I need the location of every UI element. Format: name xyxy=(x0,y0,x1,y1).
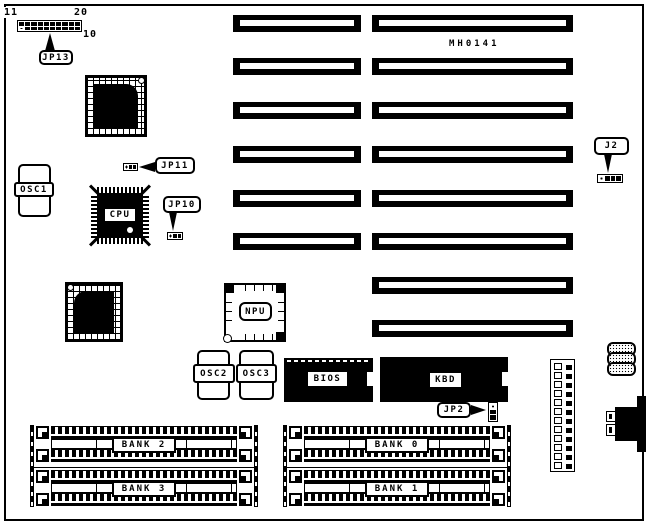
socket-teeth xyxy=(304,426,490,434)
jp13-pin xyxy=(75,22,80,26)
jp13-pin xyxy=(62,27,67,31)
bank-rail xyxy=(30,425,34,507)
expansion-slot xyxy=(372,146,573,163)
socket-clip xyxy=(239,426,252,439)
expansion-slot xyxy=(233,102,361,119)
qfp-chip-top-left xyxy=(85,75,147,137)
socket-corner xyxy=(276,332,285,341)
bank-label: BANK 2 xyxy=(112,437,176,453)
bank-rail xyxy=(254,425,258,507)
jumper-pin xyxy=(490,415,496,420)
jp13-pin xyxy=(75,27,80,31)
bank-rail xyxy=(283,425,287,507)
socket-bar xyxy=(304,503,490,506)
board-part-number: MH0141 xyxy=(449,39,500,49)
inductor-component xyxy=(607,342,636,376)
cpu-pins-right xyxy=(143,194,149,238)
expansion-slot xyxy=(372,320,573,337)
jp11-jumper xyxy=(123,163,138,171)
power-pin xyxy=(566,365,572,370)
pin1-notch-icon xyxy=(138,77,145,84)
socket-bar xyxy=(51,459,237,462)
power-pin xyxy=(566,455,572,460)
bank-label: BANK 1 xyxy=(365,481,429,497)
slot-opening xyxy=(379,20,566,26)
socket-clip xyxy=(289,470,302,483)
bios-notch xyxy=(367,372,373,386)
slot-opening xyxy=(379,63,566,69)
slot-opening xyxy=(240,195,354,201)
clip-hook xyxy=(42,455,47,460)
jp10-jumper xyxy=(167,232,183,240)
qfp-chip-body xyxy=(74,291,114,333)
slot-opening xyxy=(240,63,354,69)
jp13-pin1 xyxy=(19,27,24,31)
osc2-label: OSC2 xyxy=(193,364,235,383)
socket-clip xyxy=(36,493,49,506)
jp13-pin xyxy=(56,22,61,26)
power-hole xyxy=(554,444,562,451)
socket-pin1-notch-icon xyxy=(223,334,232,343)
expansion-slot xyxy=(372,102,573,119)
jp13-pin xyxy=(25,22,30,26)
expansion-slot xyxy=(233,190,361,207)
socket-clip xyxy=(492,470,505,483)
power-pin xyxy=(566,410,572,415)
jp11-callout-label: JP11 xyxy=(155,157,195,174)
socket-ticks xyxy=(226,296,232,329)
clip-hook xyxy=(241,455,246,460)
jumper-pin xyxy=(605,176,610,181)
clip-hook xyxy=(494,476,499,481)
slot-opening xyxy=(379,325,566,331)
socket-clip xyxy=(36,470,49,483)
bank-separator xyxy=(34,467,254,468)
clip-hook xyxy=(42,499,47,504)
kbd-label: KBD xyxy=(429,372,462,388)
jp10-callout-label: JP10 xyxy=(163,196,201,213)
expansion-slot xyxy=(372,15,573,32)
j2-callout-pointer xyxy=(604,154,612,173)
expansion-slot xyxy=(372,190,573,207)
jp13-pin xyxy=(38,27,43,31)
bios-socket-dashes xyxy=(287,360,370,362)
power-pin xyxy=(566,464,572,469)
jp13-pin xyxy=(62,22,67,26)
power-hole xyxy=(554,399,562,406)
power-hole xyxy=(554,408,562,415)
jumper-pin xyxy=(129,165,132,169)
socket-corner xyxy=(276,284,285,293)
socket-clip xyxy=(289,493,302,506)
jp13-pin xyxy=(31,27,36,31)
clip-hook xyxy=(494,455,499,460)
jumper-pin xyxy=(490,404,496,409)
socket-clip xyxy=(492,426,505,439)
slot-opening xyxy=(379,107,566,113)
cpu-pins-bottom xyxy=(97,238,143,244)
clip-hook xyxy=(42,476,47,481)
cpu-label: CPU xyxy=(104,208,136,222)
slot-opening xyxy=(240,107,354,113)
jp13-callout-pointer xyxy=(45,33,55,51)
power-hole xyxy=(554,426,562,433)
jp13-pin xyxy=(44,22,49,26)
bank-label: BANK 3 xyxy=(112,481,176,497)
jp2-callout-pointer xyxy=(471,405,486,415)
power-hole xyxy=(554,453,562,460)
j2-callout-label: J2 xyxy=(594,137,629,155)
socket-corner xyxy=(225,284,234,293)
expansion-slot xyxy=(372,233,573,250)
jp13-pin xyxy=(69,27,74,31)
socket-clip xyxy=(492,449,505,462)
jumper-pin xyxy=(599,176,604,181)
power-hole xyxy=(554,363,562,370)
jumper-pin xyxy=(133,165,136,169)
keyboard-port-step xyxy=(637,440,646,452)
power-hole xyxy=(554,372,562,379)
power-pin xyxy=(566,392,572,397)
power-hole xyxy=(554,417,562,424)
power-pin xyxy=(566,383,572,388)
jp13-pin xyxy=(25,27,30,31)
power-hole xyxy=(554,390,562,397)
motherboard-diagram: 11 20 10 JP13 OSC1 JP11 CPU JP10 xyxy=(0,0,650,528)
socket-clip xyxy=(492,493,505,506)
clip-hook xyxy=(494,432,499,437)
socket-clip xyxy=(239,449,252,462)
expansion-slot xyxy=(233,233,361,250)
clip-hook xyxy=(295,455,300,460)
socket-ticks xyxy=(278,296,284,329)
power-pin xyxy=(566,401,572,406)
slot-opening xyxy=(240,151,354,157)
expansion-slot xyxy=(372,58,573,75)
expansion-slot xyxy=(233,15,361,32)
socket-teeth xyxy=(304,470,490,478)
jp11-callout-pointer xyxy=(139,162,155,172)
clip-hook xyxy=(295,432,300,437)
clip-hook xyxy=(241,499,246,504)
socket-teeth xyxy=(51,470,237,478)
slot-opening xyxy=(240,238,354,244)
jp13-pin-header xyxy=(17,20,82,32)
expansion-slot xyxy=(372,277,573,294)
socket-clip xyxy=(289,426,302,439)
slot-opening xyxy=(379,282,566,288)
jp13-pin xyxy=(56,27,61,31)
jumper-pin xyxy=(490,410,496,415)
jumper-pin xyxy=(173,234,176,238)
socket-clip xyxy=(36,426,49,439)
socket-ticks xyxy=(237,285,273,291)
slot-opening xyxy=(379,151,566,157)
socket-clip xyxy=(36,449,49,462)
slot-opening xyxy=(379,238,566,244)
power-pin xyxy=(566,419,572,424)
jp13-pin xyxy=(19,22,24,26)
kbd-notch xyxy=(502,372,508,386)
jp13-pin xyxy=(50,27,55,31)
bios-label: BIOS xyxy=(307,371,348,387)
clip-hook xyxy=(241,432,246,437)
expansion-slot xyxy=(233,58,361,75)
socket-bar xyxy=(51,503,237,506)
power-pin xyxy=(566,437,572,442)
power-pin xyxy=(566,446,572,451)
power-hole xyxy=(554,462,562,469)
clip-hook xyxy=(241,476,246,481)
pin1-notch-icon xyxy=(67,284,74,291)
jp10-callout-pointer xyxy=(169,212,177,231)
jp13-pin xyxy=(38,22,43,26)
jp13-pin xyxy=(50,22,55,26)
qfp-chip-body xyxy=(94,84,138,128)
osc1-label: OSC1 xyxy=(14,182,54,197)
bank-separator xyxy=(287,467,507,468)
bank-rail xyxy=(507,425,511,507)
clip-hook xyxy=(295,499,300,504)
slot-opening xyxy=(379,195,566,201)
npu-label: NPU xyxy=(239,302,272,321)
jumper-pin xyxy=(178,234,181,238)
jumper-pin xyxy=(611,176,616,181)
memory-bank-block: BANK 0BANK 1 xyxy=(283,425,511,507)
j2-jumper xyxy=(597,174,623,183)
socket-teeth xyxy=(51,426,237,434)
socket-clip xyxy=(239,493,252,506)
clip-hook xyxy=(42,432,47,437)
power-pin xyxy=(566,374,572,379)
jp13-pin-number-top-right: 20 xyxy=(74,7,88,18)
socket-clip xyxy=(289,449,302,462)
power-hole xyxy=(554,435,562,442)
jp2-jumper xyxy=(488,402,498,422)
jp13-pin-number-bottom-right: 10 xyxy=(83,29,97,40)
socket-clip xyxy=(239,470,252,483)
socket-ticks xyxy=(237,334,273,340)
socket-bar xyxy=(304,459,490,462)
qfp-chip-lower-left xyxy=(65,282,123,342)
keyboard-port xyxy=(615,407,646,441)
bank-label: BANK 0 xyxy=(365,437,429,453)
expansion-slot xyxy=(233,146,361,163)
osc3-label: OSC3 xyxy=(236,364,277,383)
jumper-pin xyxy=(169,234,172,238)
memory-bank-block: BANK 2BANK 3 xyxy=(30,425,258,507)
power-pin xyxy=(566,428,572,433)
jp13-pin xyxy=(44,27,49,31)
jp2-callout-label: JP2 xyxy=(437,402,471,418)
power-connector xyxy=(550,359,575,472)
clip-hook xyxy=(295,476,300,481)
jp13-callout-label: JP13 xyxy=(39,50,73,65)
slot-opening xyxy=(240,20,354,26)
jp13-pin xyxy=(69,22,74,26)
power-hole xyxy=(554,381,562,388)
clip-hook xyxy=(494,499,499,504)
cpu-pin1-dot-icon xyxy=(127,227,133,233)
jp13-pin xyxy=(31,22,36,26)
jumper-pin xyxy=(616,176,621,181)
jp13-pin-number-top-left: 11 xyxy=(4,7,18,18)
jumper-pin xyxy=(125,165,128,169)
